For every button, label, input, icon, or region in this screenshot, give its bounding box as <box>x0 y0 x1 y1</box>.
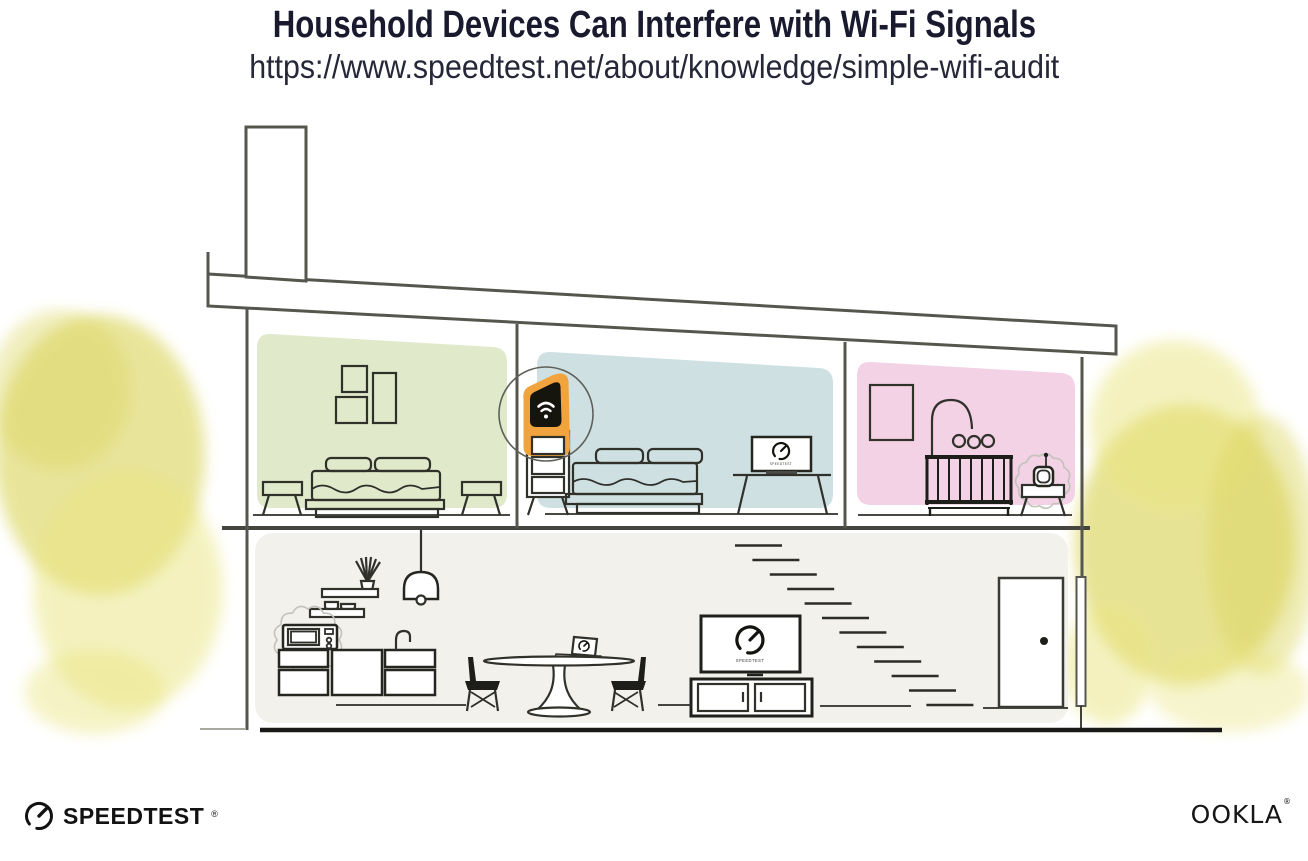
house-cross-section-illustration: SPEEDTEST <box>0 0 1308 861</box>
registered-mark: ® <box>1283 797 1292 806</box>
chimney <box>246 127 306 281</box>
kitchen-drawer <box>385 650 435 667</box>
foliage-left <box>0 310 223 734</box>
dresser-drawer <box>532 437 564 454</box>
speedtest-wordmark: SPEEDTEST <box>63 803 204 830</box>
ookla-logo: OOKLA® <box>1191 800 1292 829</box>
tv-brand-label: SPEEDTEST <box>736 658 765 663</box>
antenna-tip <box>1044 453 1048 457</box>
table-base <box>528 708 590 717</box>
speedtest-logo: SPEEDTEST® <box>22 799 218 833</box>
ookla-wordmark: OOKLA <box>1191 800 1283 829</box>
kitchen-cabinet <box>385 670 435 695</box>
microwave <box>283 625 337 649</box>
source-url: https://www.speedtest.net/about/knowledg… <box>249 48 1059 86</box>
foliage-right <box>1063 340 1308 732</box>
page-title: Household Devices Can Interfere with Wi-… <box>272 4 1035 47</box>
dresser-drawer <box>532 477 564 493</box>
laptop-brand-label: SPEEDTEST <box>770 462 793 466</box>
speedtest-gauge-icon <box>22 799 56 833</box>
kitchen-drawer <box>279 650 328 667</box>
door-knob <box>1040 637 1048 645</box>
dining-table-top <box>484 657 634 666</box>
shelf <box>310 609 364 617</box>
registered-mark: ® <box>211 809 218 819</box>
infographic-header: Household Devices Can Interfere with Wi-… <box>0 4 1308 86</box>
tv-screen <box>701 616 800 672</box>
downspout <box>1077 577 1086 706</box>
shelf <box>322 589 378 597</box>
bedroom-middle-bg <box>537 352 833 508</box>
tv-area: SPEEDTEST <box>691 616 812 716</box>
kitchen-cabinet <box>279 670 328 695</box>
front-door <box>999 578 1063 707</box>
lamp-bulb <box>417 596 426 605</box>
kitchen-cabinet <box>332 650 382 695</box>
